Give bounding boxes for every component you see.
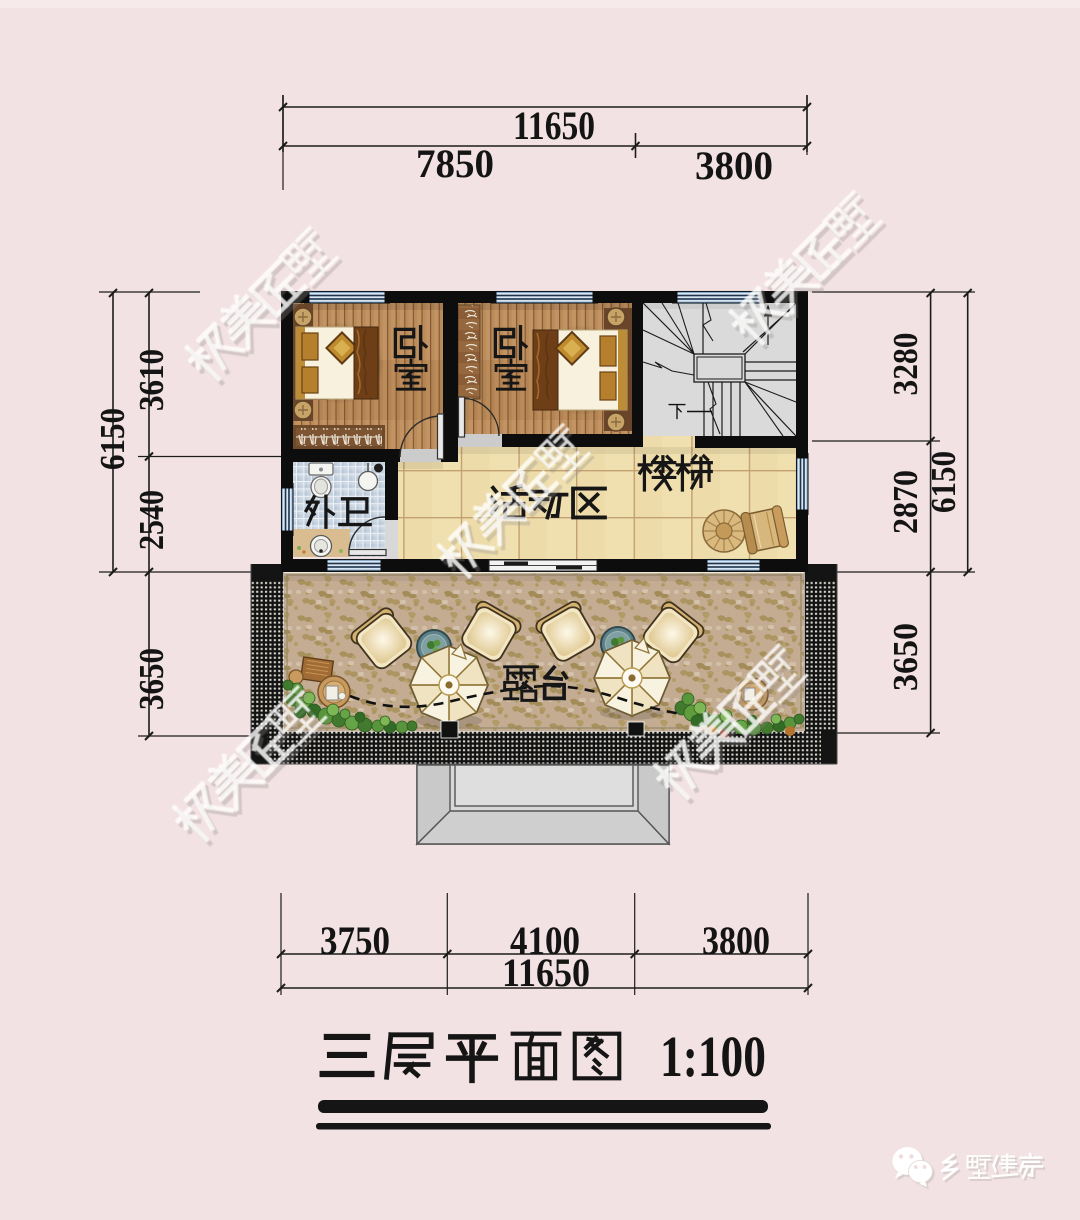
svg-text:3650: 3650	[132, 648, 171, 710]
svg-text:3280: 3280	[886, 333, 925, 396]
svg-text:7850: 7850	[416, 141, 494, 186]
svg-text:3750: 3750	[320, 918, 390, 963]
svg-text:11650: 11650	[502, 950, 590, 995]
svg-text:3800: 3800	[695, 143, 773, 188]
svg-text:11650: 11650	[513, 103, 595, 148]
svg-text:3800: 3800	[702, 918, 770, 963]
svg-text:2540: 2540	[132, 490, 171, 550]
svg-text:2870: 2870	[886, 470, 925, 534]
svg-text:3650: 3650	[886, 623, 925, 691]
svg-text:1:100: 1:100	[660, 1024, 766, 1089]
svg-text:6150: 6150	[924, 451, 963, 513]
svg-text:6150: 6150	[93, 408, 132, 470]
svg-text:3610: 3610	[132, 349, 171, 411]
